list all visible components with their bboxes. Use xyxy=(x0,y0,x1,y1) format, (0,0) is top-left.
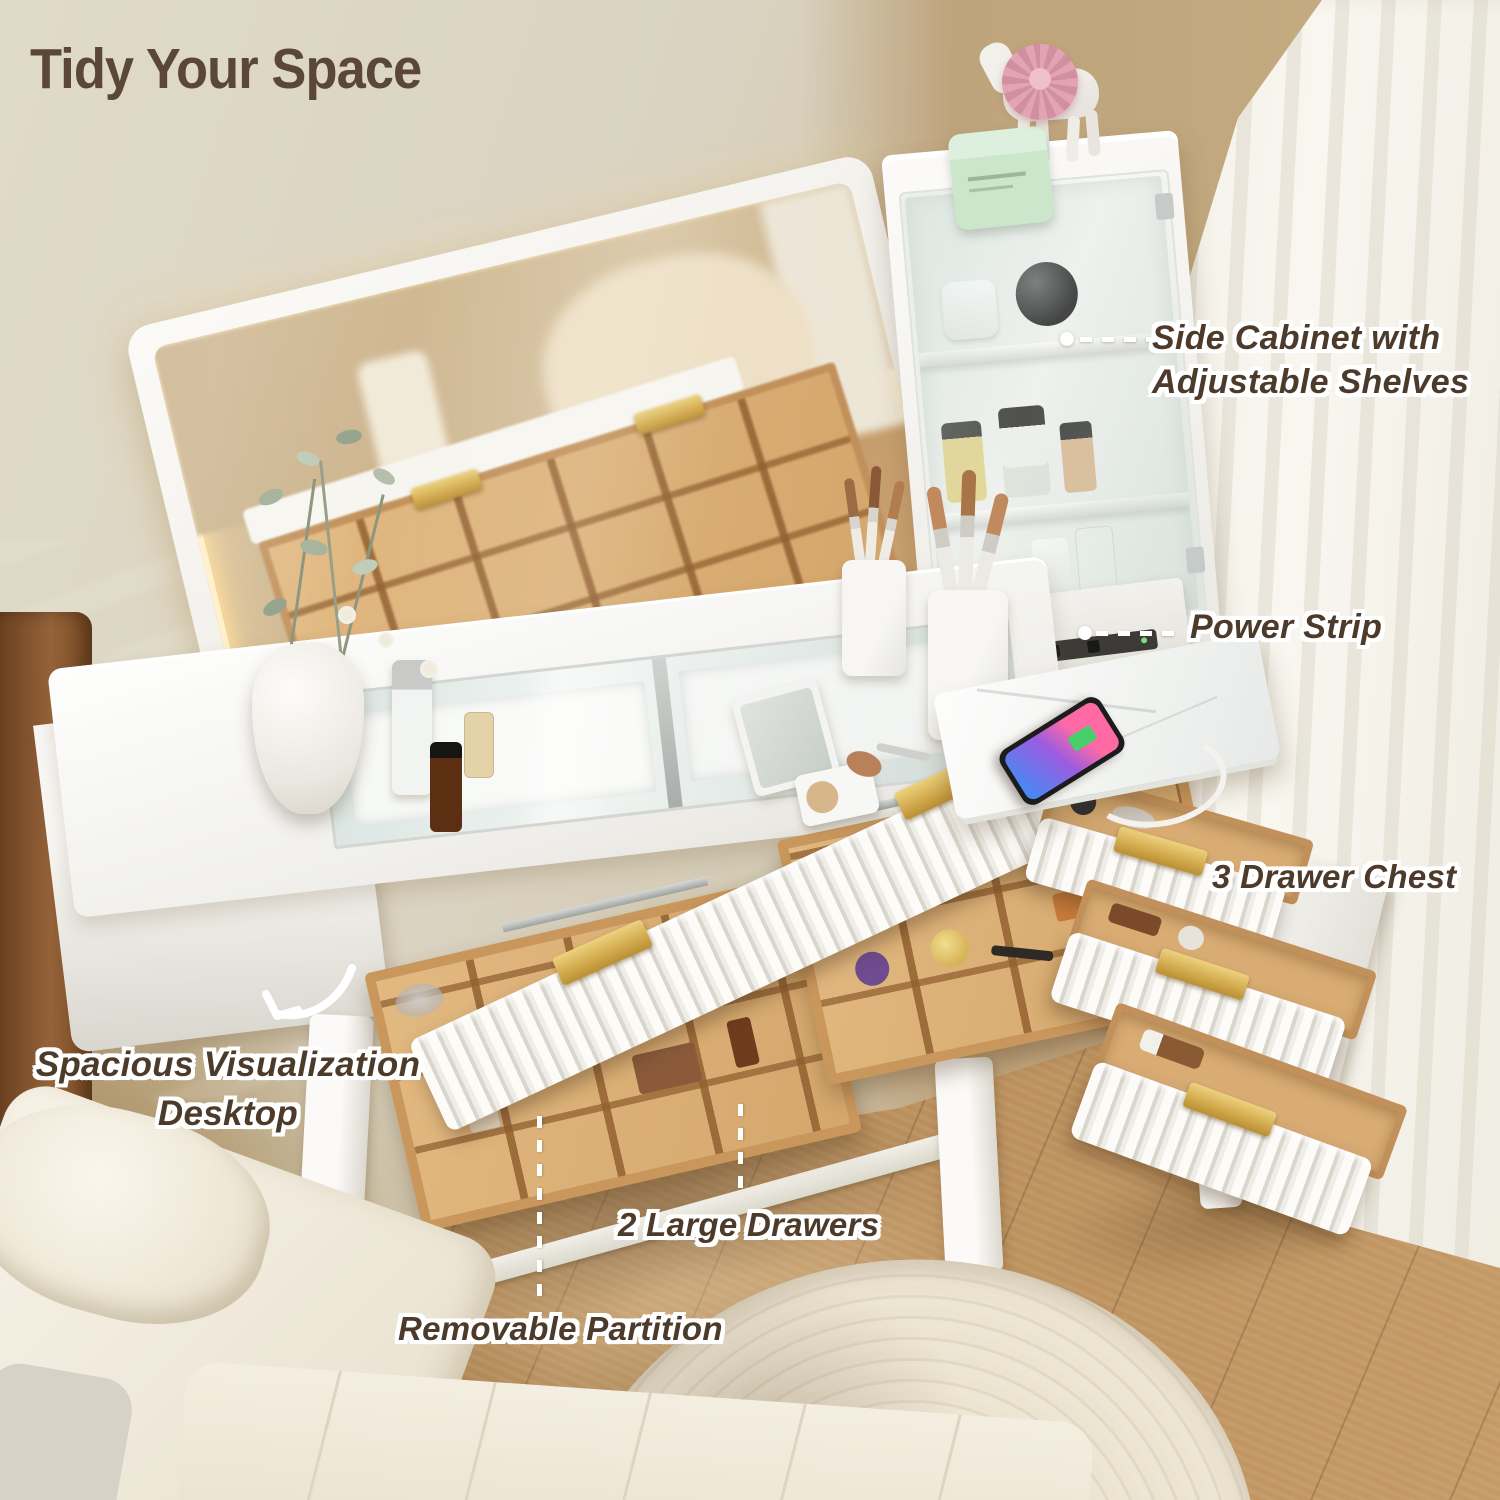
white-flower xyxy=(420,660,438,678)
compact-powder xyxy=(803,778,841,816)
makeup-item-jewelry xyxy=(392,979,446,1021)
callout-desktop-line2: Desktop xyxy=(28,1089,428,1138)
desk-leg-middle xyxy=(934,1057,1003,1275)
curved-arrow-icon xyxy=(252,960,362,1034)
leader-dash-line xyxy=(1080,337,1156,342)
callout-side-cabinet: Side Cabinet with Adjustable Shelves xyxy=(1152,316,1469,404)
callout-desktop: Spacious Visualization Desktop xyxy=(28,1040,428,1138)
white-flower xyxy=(338,606,356,624)
leader-dash-line xyxy=(738,1104,743,1200)
callout-power-strip: Power Strip xyxy=(1190,608,1382,647)
leader-dash-line xyxy=(1096,631,1182,636)
leader-dash-line xyxy=(537,1116,542,1304)
power-outlet xyxy=(1087,640,1100,653)
makeup-item-gold-jar xyxy=(927,926,972,971)
white-flower xyxy=(378,632,394,648)
skincare-bottle-amber xyxy=(430,742,462,832)
product-scene: Tidy Your Space Side Cabinet with Adjust… xyxy=(0,0,1500,1500)
leader-dot xyxy=(1078,626,1092,640)
chest-item-perfume xyxy=(1107,902,1163,937)
callout-side-cabinet-line1: Side Cabinet with xyxy=(1152,316,1469,360)
chest-item-jar xyxy=(1175,922,1207,953)
chest-item-spray xyxy=(1138,1028,1206,1071)
makeup-item-palette xyxy=(631,1042,702,1095)
horse-leg xyxy=(1066,116,1080,163)
green-cream-jar xyxy=(947,125,1054,231)
makeup-item-purple-jar xyxy=(852,949,892,989)
page-title: Tidy Your Space xyxy=(30,36,421,102)
jar-label-lines xyxy=(968,171,1026,181)
perfume-mini-gold xyxy=(464,712,494,778)
power-led xyxy=(1141,637,1148,644)
callout-partition: Removable Partition xyxy=(398,1310,723,1348)
door-hinge xyxy=(1155,193,1175,220)
leader-dot xyxy=(1060,332,1074,346)
door-hinge xyxy=(1185,546,1205,573)
makeup-item-brown-bottle xyxy=(726,1016,760,1068)
jar-label-lines xyxy=(969,185,1013,193)
skincare-bottle-tall xyxy=(392,660,432,795)
brush-cup-small xyxy=(842,560,906,676)
horse-leg xyxy=(1085,110,1101,157)
callout-large-drawers: 2 Large Drawers xyxy=(618,1206,879,1244)
callout-drawer-chest: 3 Drawer Chest xyxy=(1212,858,1456,896)
callout-desktop-line1: Spacious Visualization xyxy=(28,1040,428,1089)
pink-flower xyxy=(1002,44,1078,120)
callout-side-cabinet-line2: Adjustable Shelves xyxy=(1152,360,1469,404)
makeup-item-liner-pencil xyxy=(991,945,1054,961)
